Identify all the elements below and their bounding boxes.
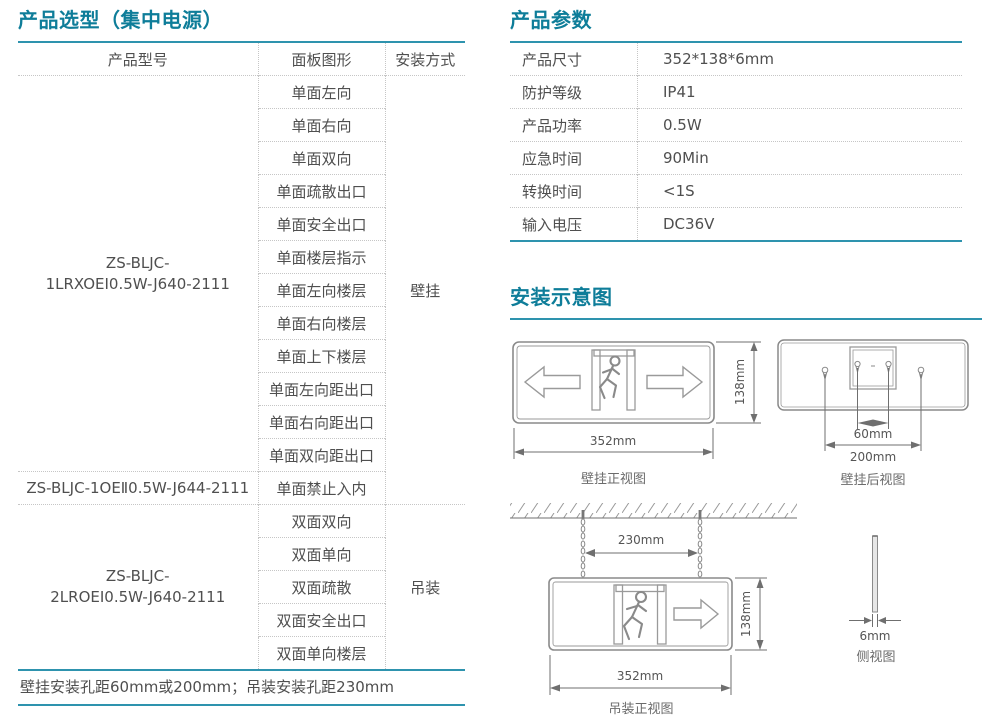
model-number-cell: ZS-BLJC-1OEⅡ0.5W-J644-2111	[18, 472, 258, 505]
width-dimension: 352mm	[550, 655, 731, 695]
param-label: 应急时间	[510, 142, 638, 175]
sign-panel-outline	[549, 578, 732, 650]
param-value: 90Min	[638, 142, 963, 175]
panel-graphic-cell: 单面左向距出口	[258, 373, 385, 406]
width-dimension: 352mm	[514, 428, 713, 459]
install-title: 安装示意图	[510, 283, 982, 311]
panel-graphic-cell: 单面左向楼层	[258, 274, 385, 307]
column-header-2: 安装方式	[385, 43, 465, 76]
product-params-table: 产品尺寸352*138*6mm防护等级IP41产品功率0.5W应急时间90Min…	[510, 43, 962, 240]
product-selection-table: 产品型号面板图形安装方式ZS-BLJC-1LRXOEⅠ0.5W-J640-211…	[18, 43, 465, 669]
height-dimension: 138mm	[716, 342, 761, 423]
param-row: 应急时间90Min	[510, 142, 962, 175]
panel-graphic-cell: 双面疏散	[258, 571, 385, 604]
mount-type-cell: 壁挂	[385, 76, 465, 505]
dim-200-label: 200mm	[850, 450, 896, 463]
column-header-1: 面板图形	[258, 43, 385, 76]
dim-width-label: 352mm	[590, 434, 636, 448]
front-view-caption: 壁挂正视图	[510, 468, 717, 487]
params-title: 产品参数	[510, 6, 962, 34]
panel-graphic-cell: 双面安全出口	[258, 604, 385, 637]
dim-6mm-label: 6mm	[859, 629, 890, 643]
param-value: <1S	[638, 175, 963, 208]
param-value: IP41	[638, 76, 963, 109]
side-view-diagram: 6mm 侧视图	[843, 530, 909, 665]
param-value: 352*138*6mm	[638, 43, 963, 76]
wall-back-view-diagram: 60mm 200mm 壁挂后视图	[775, 337, 975, 488]
table-row: ZS-BLJC-1LRXOEⅠ0.5W-J640-2111单面左向壁挂	[18, 76, 465, 109]
param-label: 产品尺寸	[510, 43, 638, 76]
back-panel-outline	[778, 340, 968, 410]
hook-pin	[582, 510, 585, 519]
height-dimension: 138mm	[735, 578, 767, 650]
selection-title: 产品选型（集中电源）	[18, 6, 465, 34]
hanging-view-caption: 吊装正视图	[505, 698, 777, 717]
hanging-view-diagram: 230mm	[505, 498, 815, 717]
dim-230-label: 230mm	[618, 533, 664, 547]
side-profile	[873, 536, 878, 612]
back-view-caption: 壁挂后视图	[775, 469, 971, 488]
panel-graphic-cell: 单面右向	[258, 109, 385, 142]
table-row: ZS-BLJC-2LROEⅠ0.5W-J640-2111双面双向吊装	[18, 505, 465, 538]
chain-pitch-dimension: 230mm	[585, 533, 698, 557]
column-header-0: 产品型号	[18, 43, 258, 76]
panel-graphic-cell: 单面禁止入内	[258, 472, 385, 505]
panel-graphic-cell: 单面双向	[258, 142, 385, 175]
param-row: 产品功率0.5W	[510, 109, 962, 142]
panel-graphic-cell: 单面楼层指示	[258, 241, 385, 274]
param-label: 输入电压	[510, 208, 638, 241]
param-row: 产品尺寸352*138*6mm	[510, 43, 962, 76]
dim-60-label: 60mm	[854, 427, 893, 441]
panel-graphic-cell: 单面疏散出口	[258, 175, 385, 208]
panel-graphic-cell: 双面单向楼层	[258, 637, 385, 670]
dim-height-label: 138mm	[733, 359, 747, 405]
panel-graphic-cell: 双面单向	[258, 538, 385, 571]
accent-rule	[510, 240, 962, 242]
thickness-dimension: 6mm	[849, 614, 901, 643]
product-selection-section: 产品选型（集中电源） 产品型号面板图形安装方式ZS-BLJC-1LRXOEⅠ0.…	[18, 6, 465, 706]
panel-graphic-cell: 单面右向楼层	[258, 307, 385, 340]
model-number-cell: ZS-BLJC-1LRXOEⅠ0.5W-J640-2111	[18, 76, 258, 472]
side-view-caption: 侧视图	[843, 646, 909, 665]
mount-type-cell: 吊装	[385, 505, 465, 670]
param-row: 防护等级IP41	[510, 76, 962, 109]
panel-graphic-cell: 单面安全出口	[258, 208, 385, 241]
panel-graphic-cell: 单面上下楼层	[258, 340, 385, 373]
dim-height-label: 138mm	[739, 591, 753, 637]
param-label: 转换时间	[510, 175, 638, 208]
ceiling-hatch	[510, 503, 797, 518]
param-label: 防护等级	[510, 76, 638, 109]
param-row: 转换时间<1S	[510, 175, 962, 208]
chain-icon	[581, 519, 702, 577]
panel-graphic-cell: 单面右向距出口	[258, 406, 385, 439]
wall-front-view-diagram: 138mm 352mm 壁挂正视图	[510, 337, 765, 487]
param-row: 输入电压DC36V	[510, 208, 962, 241]
model-number-cell: ZS-BLJC-2LROEⅠ0.5W-J640-2111	[18, 505, 258, 670]
install-diagram-section: 安装示意图	[510, 283, 982, 718]
dim-width-label: 352mm	[617, 669, 663, 683]
panel-graphic-cell: 单面左向	[258, 76, 385, 109]
mounting-hole-note: 壁挂安装孔距60mm或200mm；吊装安装孔距230mm	[18, 671, 465, 704]
param-value: DC36V	[638, 208, 963, 241]
accent-rule	[18, 704, 465, 706]
hook-pin	[699, 510, 702, 519]
product-params-section: 产品参数 产品尺寸352*138*6mm防护等级IP41产品功率0.5W应急时间…	[510, 6, 962, 242]
diagrams-area: 138mm 352mm 壁挂正视图	[510, 320, 982, 718]
param-value: 0.5W	[638, 109, 963, 142]
param-label: 产品功率	[510, 109, 638, 142]
panel-graphic-cell: 双面双向	[258, 505, 385, 538]
panel-graphic-cell: 单面双向距出口	[258, 439, 385, 472]
